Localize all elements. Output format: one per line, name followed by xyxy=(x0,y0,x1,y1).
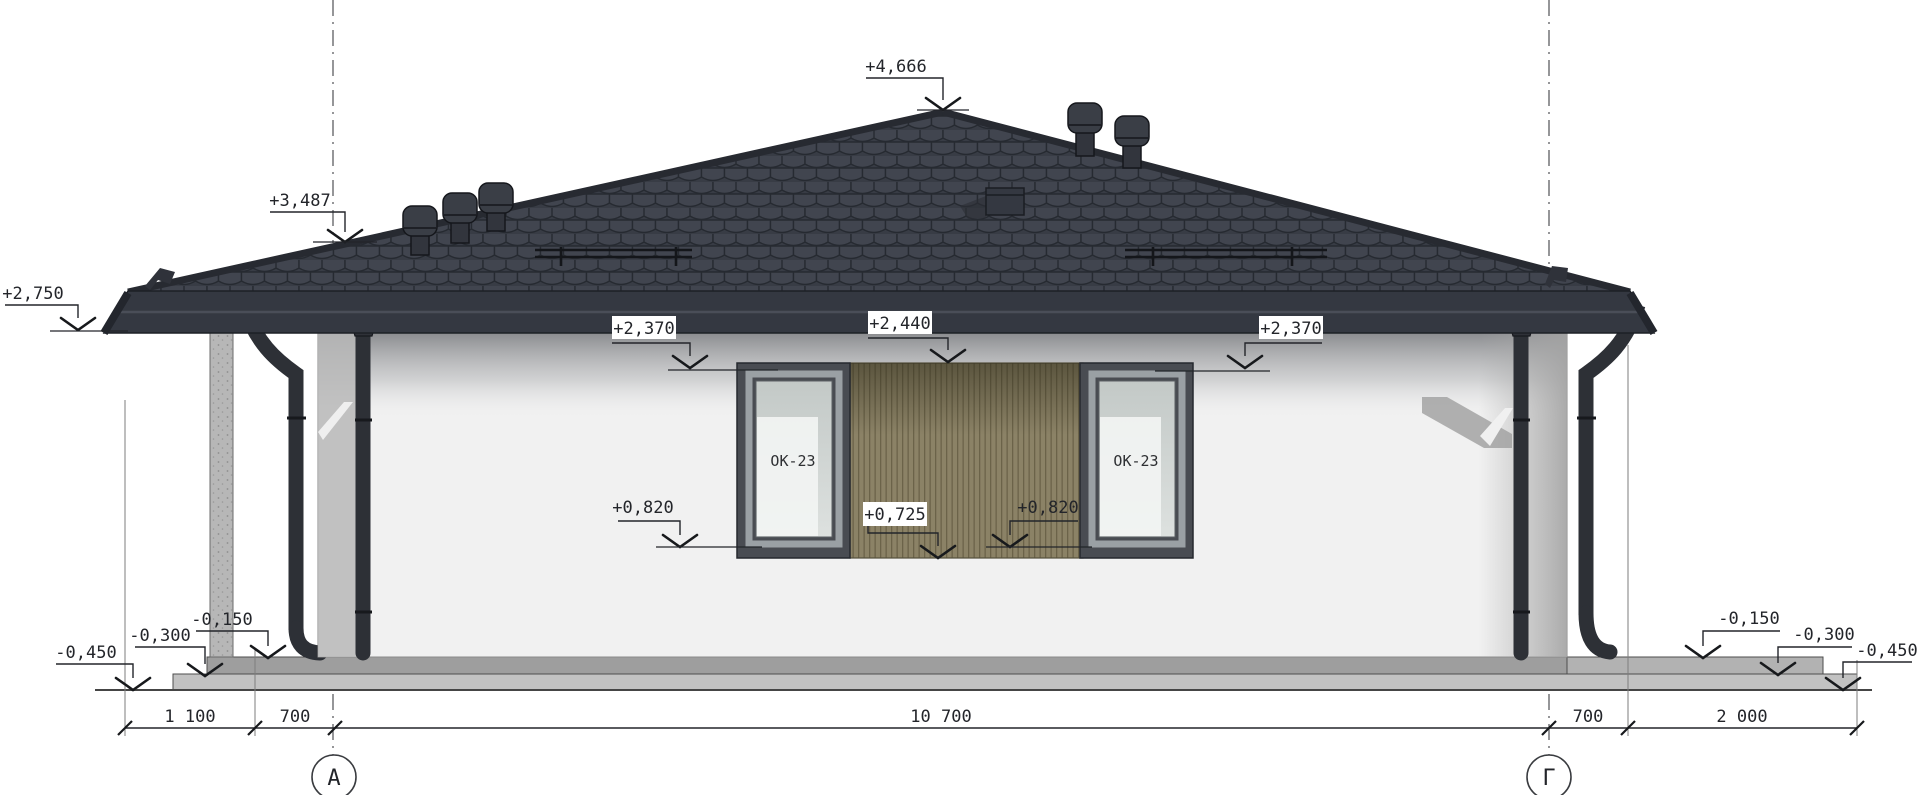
roof-hatch xyxy=(986,188,1024,215)
facade-openings: ОК-23 ОК-23 xyxy=(737,363,1193,558)
mark-text: +0,725 xyxy=(864,505,925,525)
mark-text: +3,487 xyxy=(269,191,330,211)
mark-roof-peak: +4,666 xyxy=(865,57,969,110)
right-outer-downpipe-elbow xyxy=(1586,613,1610,652)
mark-text: -0,450 xyxy=(1856,641,1917,661)
vent-stem xyxy=(1123,144,1141,168)
mark-text: -0,150 xyxy=(191,610,252,630)
blind-area-lower-slab xyxy=(173,674,1857,690)
mark-roof-at-axis-a: +3,487 xyxy=(269,191,377,242)
right-porch xyxy=(1577,305,1638,652)
elevation-drawing-canvas: ОК-23 ОК-23 xyxy=(0,0,1920,795)
axis-bubbles: А Г xyxy=(312,755,1571,795)
dim-700-right: 700 xyxy=(1573,707,1604,727)
vent-stem xyxy=(487,211,505,231)
right-outer-downpipe xyxy=(1586,305,1638,615)
roof-tiles xyxy=(128,112,1630,293)
roof-vent xyxy=(1068,103,1102,133)
mark-text: +2,440 xyxy=(869,314,930,334)
window-glass-reflection xyxy=(1100,417,1161,536)
roof-vent xyxy=(403,206,437,236)
mark-text: +0,820 xyxy=(1017,498,1078,518)
axis-g-label: Г xyxy=(1542,766,1555,791)
elevation-drawing: ОК-23 ОК-23 xyxy=(0,0,1920,795)
vent-stem xyxy=(1076,131,1094,156)
window-tag-left: ОК-23 xyxy=(770,452,815,470)
mark-text: +2,370 xyxy=(613,319,674,339)
left-outer-downpipe xyxy=(244,305,296,630)
mark-text: -0,150 xyxy=(1718,609,1779,629)
left-wall-corner-shade xyxy=(318,333,357,657)
mark-text: -0,450 xyxy=(55,643,116,663)
mark-text: +2,370 xyxy=(1260,319,1321,339)
left-porch xyxy=(210,305,320,657)
dim-1100: 1 100 xyxy=(164,707,215,727)
left-outer-downpipe-elbow xyxy=(296,628,320,653)
mark-left-ground: -0,450 xyxy=(55,643,150,690)
dim-700-left: 700 xyxy=(280,707,311,727)
base-slabs xyxy=(95,657,1872,690)
window-right: ОК-23 xyxy=(1080,363,1193,558)
mark-text: +2,750 xyxy=(2,284,63,304)
window-glass-reflection xyxy=(757,417,818,536)
roof xyxy=(104,112,1654,333)
mark-text: -0,300 xyxy=(1793,625,1854,645)
roof-vent xyxy=(1115,116,1149,146)
vent-stem xyxy=(451,221,469,243)
mark-text: +4,666 xyxy=(865,57,926,77)
porch-column xyxy=(210,328,233,657)
mark-right-terrace-upper: -0,150 xyxy=(1686,609,1780,658)
axis-a-label: А xyxy=(327,766,340,791)
roof-vent xyxy=(443,193,477,223)
mark-text: +0,820 xyxy=(612,498,673,518)
window-left: ОК-23 xyxy=(737,363,850,558)
dim-2000: 2 000 xyxy=(1716,707,1767,727)
terrace-upper-slab xyxy=(207,657,1567,674)
wood-cladding-shadow xyxy=(850,363,1083,435)
window-tag-right: ОК-23 xyxy=(1113,452,1158,470)
roof-vent xyxy=(479,183,513,213)
dim-10700: 10 700 xyxy=(910,707,971,727)
mark-text: -0,300 xyxy=(129,626,190,646)
